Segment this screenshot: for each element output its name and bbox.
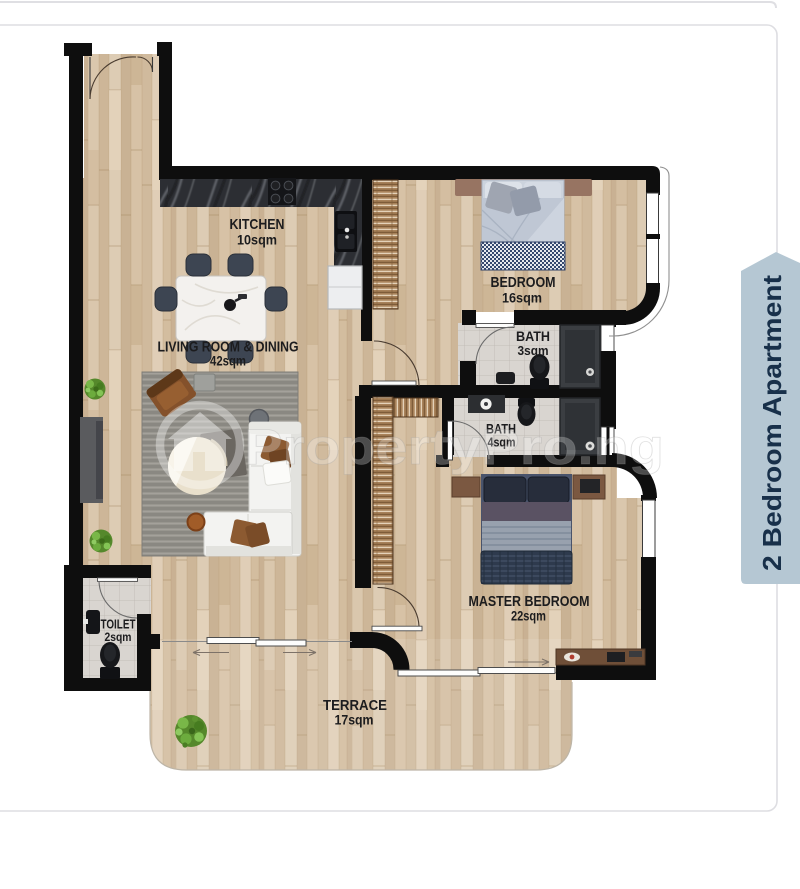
svg-text:KITCHEN: KITCHEN — [230, 216, 285, 233]
svg-text:BATH: BATH — [516, 328, 550, 344]
svg-text:16sqm: 16sqm — [502, 290, 542, 306]
svg-text:PropertyPro.ng: PropertyPro.ng — [244, 419, 664, 475]
svg-text:10sqm: 10sqm — [237, 232, 277, 248]
svg-text:2 Bedroom Apartment: 2 Bedroom Apartment — [757, 275, 787, 571]
svg-text:3sqm: 3sqm — [518, 343, 549, 358]
svg-text:42sqm: 42sqm — [210, 354, 246, 369]
svg-text:17sqm: 17sqm — [335, 712, 374, 728]
svg-text:2sqm: 2sqm — [105, 630, 132, 644]
svg-text:22sqm: 22sqm — [511, 608, 546, 624]
svg-text:BEDROOM: BEDROOM — [491, 274, 556, 291]
